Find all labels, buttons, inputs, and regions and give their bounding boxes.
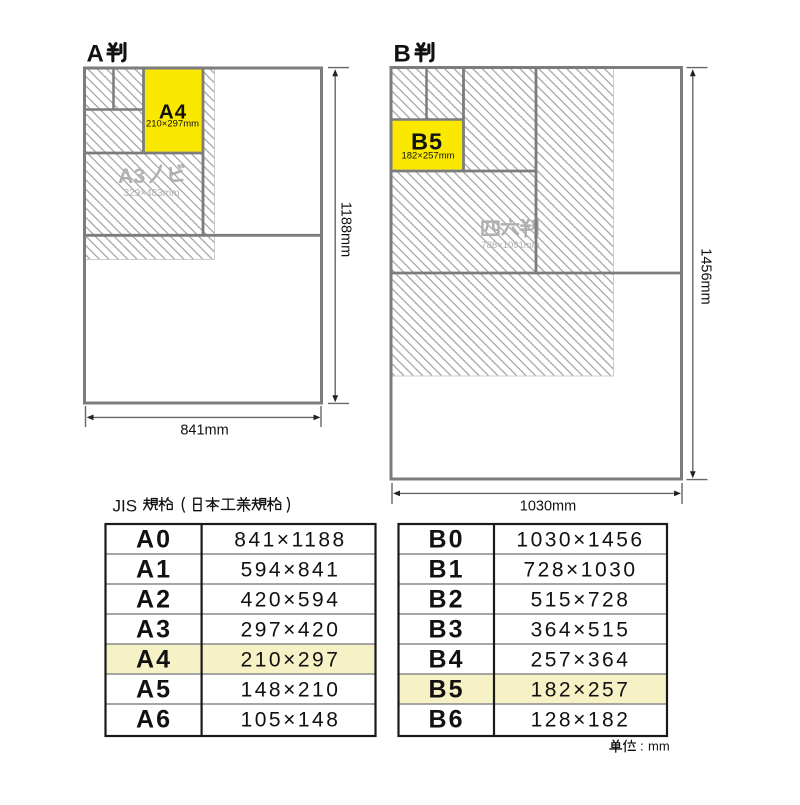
svg-text:257×364: 257×364 — [531, 649, 631, 672]
svg-text:1030mm: 1030mm — [520, 499, 576, 515]
svg-text:A6: A6 — [136, 706, 172, 734]
svg-text:515×728: 515×728 — [531, 589, 631, 612]
svg-text:182×257mm: 182×257mm — [401, 151, 454, 162]
svg-text:788×1091mm: 788×1091mm — [481, 240, 539, 251]
svg-text:JIS: JIS — [113, 497, 138, 516]
svg-text:297×420: 297×420 — [241, 619, 341, 642]
svg-text:B3: B3 — [429, 616, 465, 644]
svg-text:1030×1456: 1030×1456 — [516, 529, 644, 552]
svg-text:329×483mm: 329×483mm — [124, 188, 180, 199]
svg-text:728×1030: 728×1030 — [523, 559, 637, 582]
svg-text:B0: B0 — [429, 526, 465, 554]
svg-text:148×210: 148×210 — [241, 679, 341, 702]
svg-text:A4: A4 — [136, 646, 172, 674]
svg-text:B: B — [394, 40, 411, 67]
svg-text:B2: B2 — [429, 586, 465, 614]
svg-text:A1: A1 — [136, 556, 172, 584]
svg-text:420×594: 420×594 — [241, 589, 341, 612]
svg-text:210×297mm: 210×297mm — [146, 119, 199, 130]
svg-text:A3: A3 — [136, 616, 172, 644]
svg-text:841×1188: 841×1188 — [234, 529, 346, 552]
svg-text:A5: A5 — [136, 676, 172, 704]
svg-text:A3: A3 — [118, 165, 146, 188]
svg-text:mm: mm — [648, 739, 670, 754]
svg-text:B5: B5 — [429, 676, 465, 704]
svg-text::: : — [640, 739, 644, 754]
svg-text:128×182: 128×182 — [531, 709, 631, 732]
svg-text:A: A — [87, 40, 104, 67]
svg-text:B4: B4 — [429, 646, 465, 674]
svg-text:105×148: 105×148 — [241, 709, 341, 732]
svg-text:B1: B1 — [429, 556, 465, 584]
svg-text:210×297: 210×297 — [241, 649, 341, 672]
svg-text:841mm: 841mm — [180, 423, 228, 439]
svg-text:A0: A0 — [136, 526, 172, 554]
svg-text:1456mm: 1456mm — [697, 248, 713, 304]
svg-text:364×515: 364×515 — [531, 619, 631, 642]
svg-text:594×841: 594×841 — [241, 559, 341, 582]
svg-text:B6: B6 — [429, 706, 465, 734]
svg-text:182×257: 182×257 — [531, 679, 631, 702]
svg-text:1188mm: 1188mm — [337, 202, 353, 257]
svg-text:A2: A2 — [136, 586, 172, 614]
